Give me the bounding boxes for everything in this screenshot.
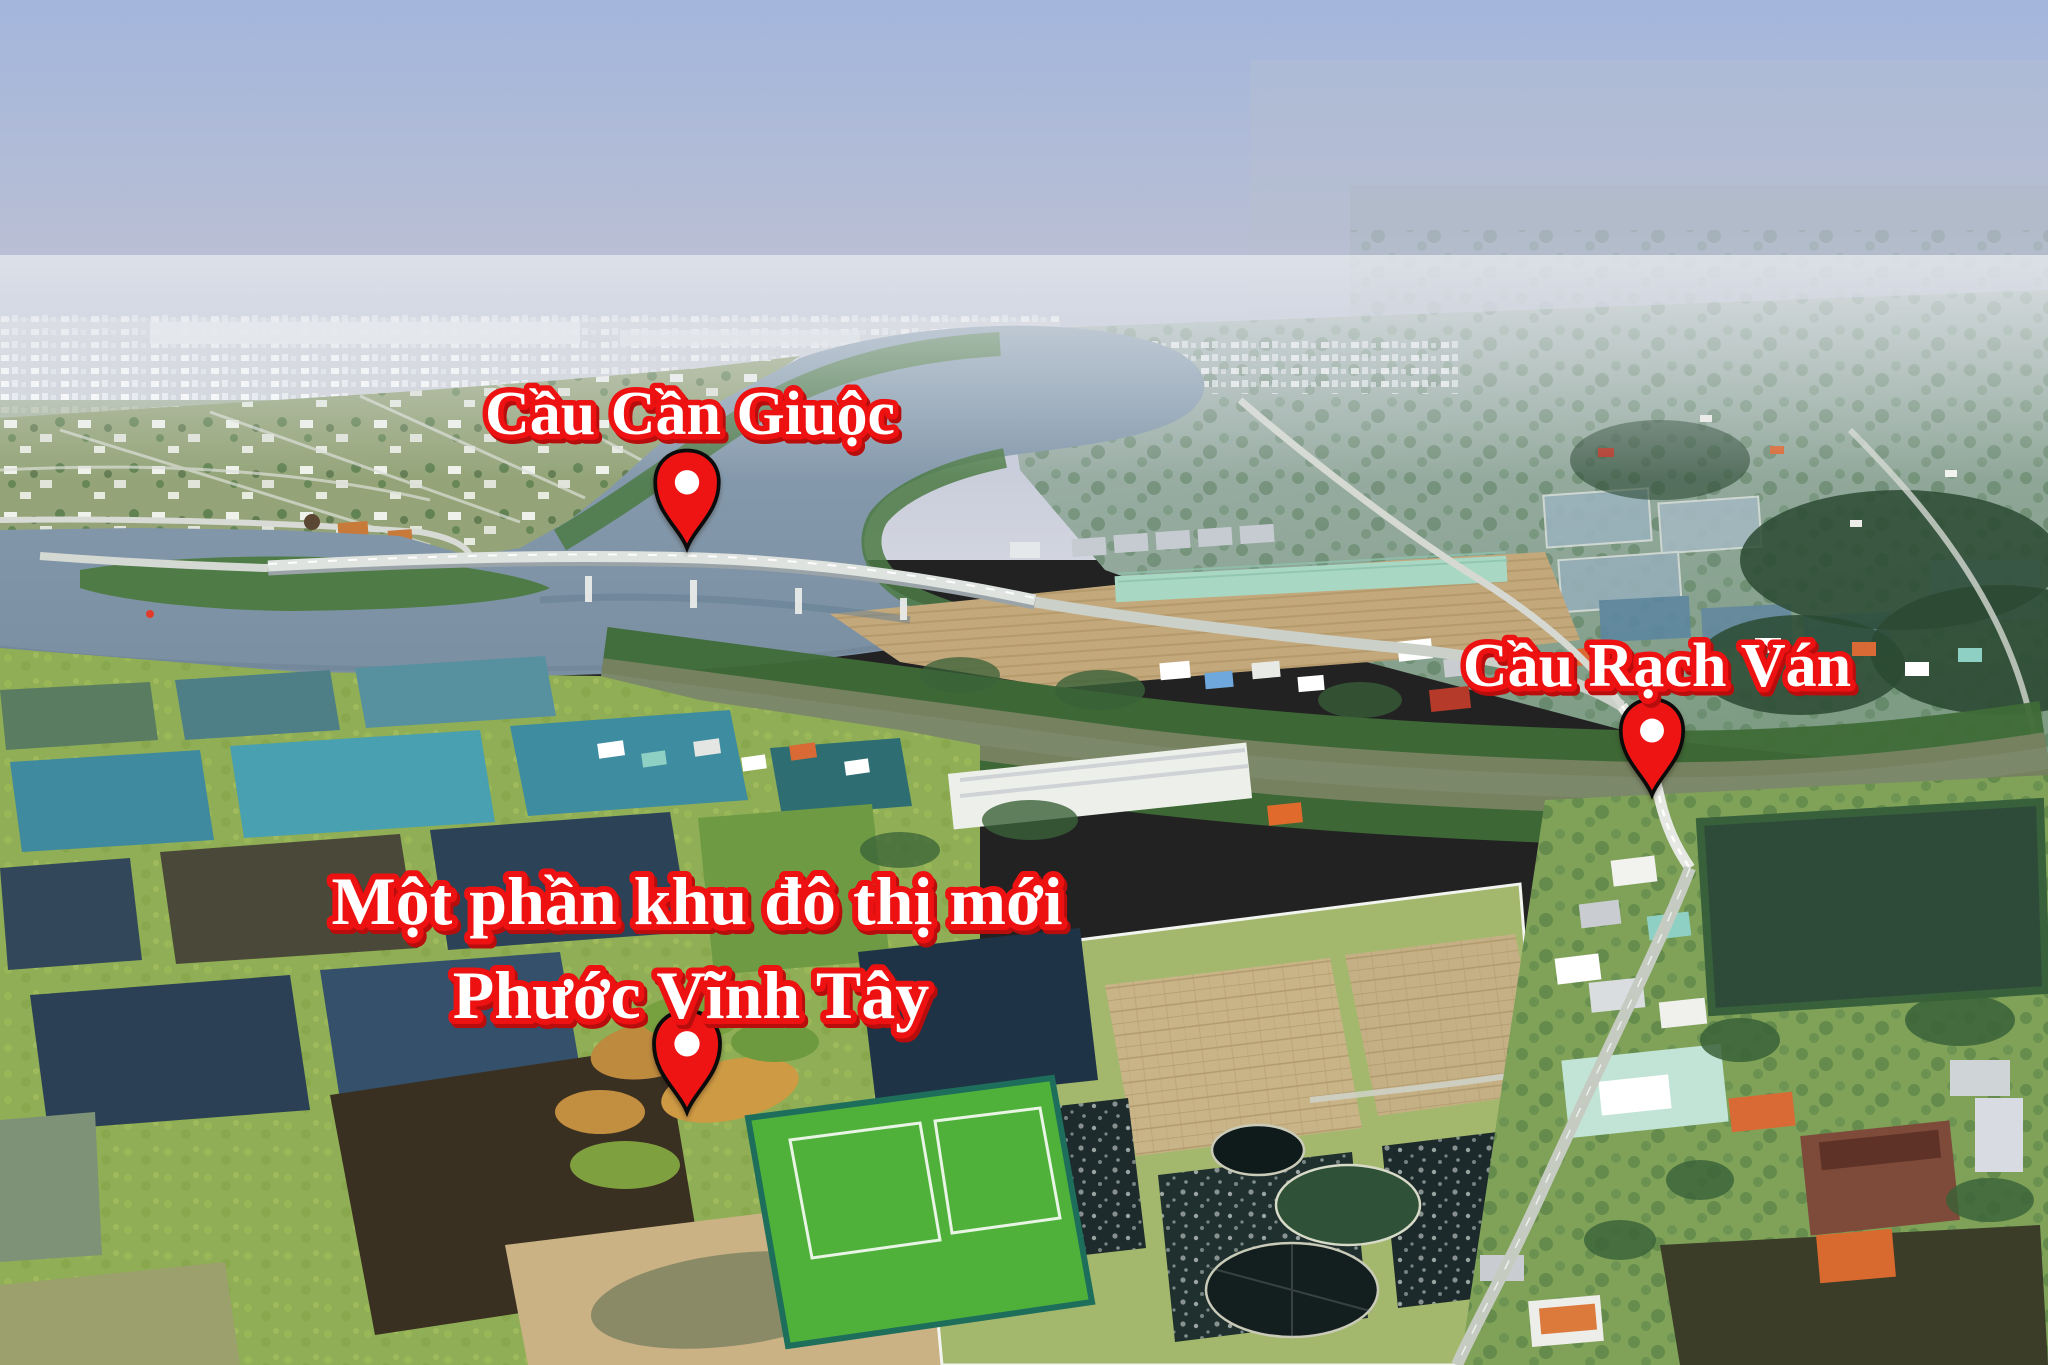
annotated-aerial-photo: Cầu Cần Giuộc Cầu Rạch Ván Một phần khu … bbox=[0, 0, 2048, 1365]
horizon-haze bbox=[0, 255, 2048, 480]
label-cau-rach-van: Cầu Rạch Ván bbox=[1463, 632, 1851, 700]
river-buoy bbox=[146, 610, 154, 618]
sports-field bbox=[748, 1078, 1092, 1346]
roadside-village bbox=[1460, 775, 2048, 1365]
label-cau-can-giuoc: Cầu Cần Giuộc bbox=[485, 380, 895, 448]
label-urban-area-line2: Phước Vĩnh Tây bbox=[453, 957, 930, 1033]
label-urban-area-line1: Một phần khu đô thị mới bbox=[331, 863, 1062, 939]
